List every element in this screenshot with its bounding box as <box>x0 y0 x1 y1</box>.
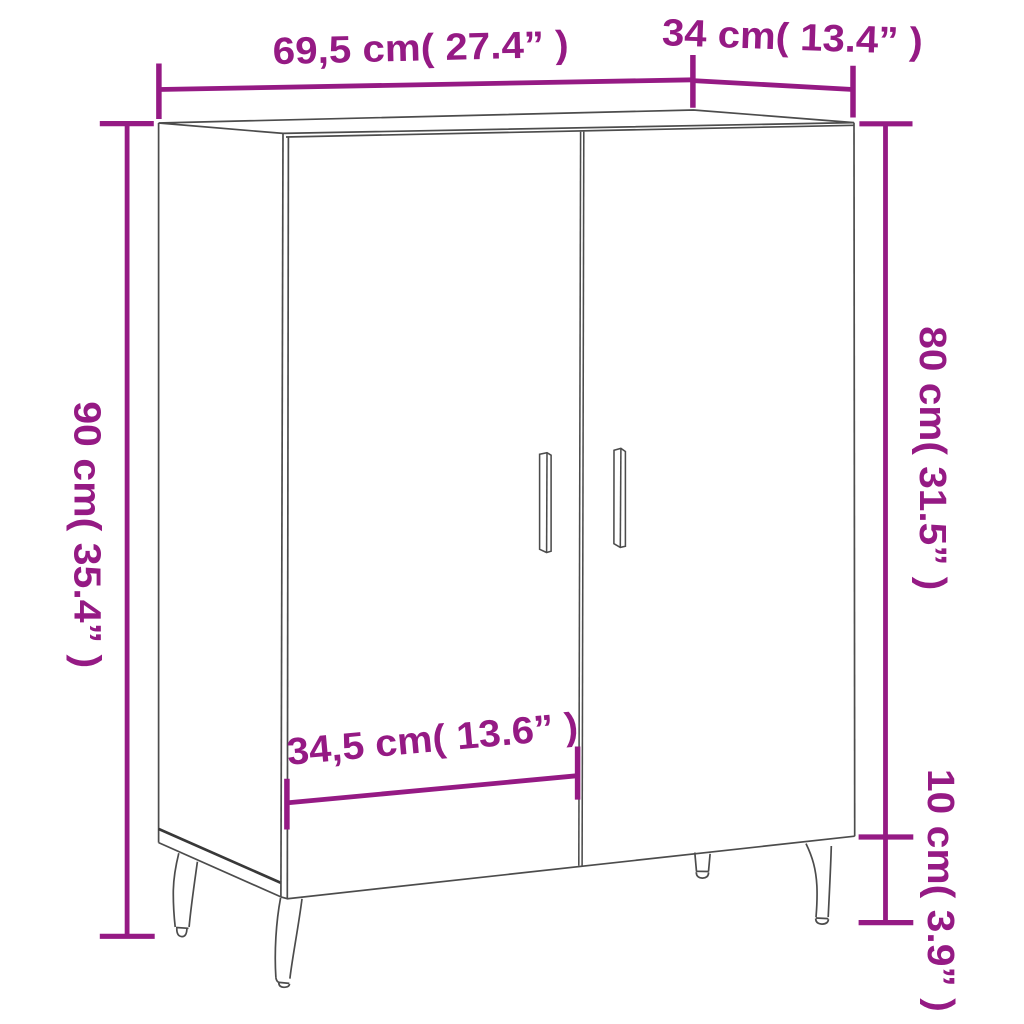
svg-text:80 cm( 31.5” ): 80 cm( 31.5” ) <box>911 326 953 590</box>
svg-text:69,5 cm( 27.4” ): 69,5 cm( 27.4” ) <box>272 24 569 73</box>
svg-text:10 cm( 3.9” ): 10 cm( 3.9” ) <box>919 769 961 1012</box>
svg-text:90 cm( 35.4” ): 90 cm( 35.4” ) <box>66 401 108 668</box>
